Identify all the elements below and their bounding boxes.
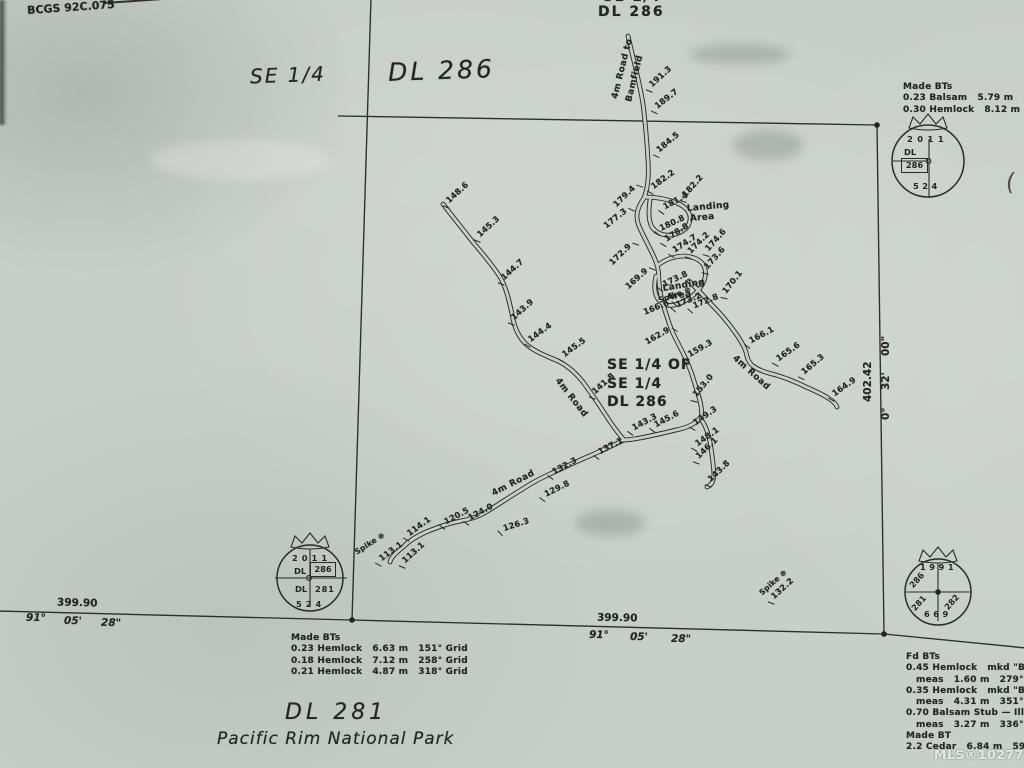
bearing-seconds: 00": [880, 336, 892, 356]
station-label: 143.8: [699, 458, 732, 490]
station-label: 172.9: [607, 235, 640, 267]
bearing-degrees: 0°: [880, 407, 892, 420]
station-label: 182.2: [641, 167, 676, 196]
bearing-seconds: 28": [101, 617, 121, 630]
station-label: 165.6: [767, 339, 802, 368]
bt-block-0: Made BTs0.23 Balsam 5.79 m 325° G0.30 He…: [903, 82, 1024, 116]
monument-year: 2011: [907, 134, 948, 144]
station-label: 184.5: [647, 129, 681, 160]
monument-plan-number: 524: [296, 599, 325, 609]
label-se-quarter: SE 1/4: [250, 62, 327, 89]
label-quarter-of-quarter: SE 1/4 OF SE 1/4 DL 286: [607, 356, 691, 412]
bearing-distance: 402.42: [862, 361, 874, 402]
station-label: 144.7: [492, 257, 525, 288]
bearing-distance: 399.90: [57, 596, 98, 609]
bt-text-line: 0.21 Hemlock 4.87 m 318° Grid: [291, 667, 468, 678]
station-label: 162.9: [643, 320, 679, 347]
bearing-degrees: 91°: [589, 629, 609, 641]
monument-lot-prefix: DL: [294, 566, 306, 576]
bearing-distance: 399.90: [597, 612, 638, 625]
station-label: 143.9: [502, 297, 535, 328]
bt-text-line: 0.35 Hemlock mkd "BT: [906, 686, 1024, 697]
station-label: 144.4: [518, 320, 553, 349]
label-dl-286-top: DL 286: [598, 4, 665, 20]
bt-block-1: Made BTs0.23 Hemlock 6.63 m 151° Grid0.1…: [291, 633, 468, 678]
station-label: 145.3: [468, 214, 501, 245]
station-label: 148.6: [437, 180, 470, 211]
bt-text-line: 0.70 Balsam Stub — Illeg: [906, 708, 1024, 719]
road-name-label: 4m Road: [490, 468, 536, 498]
survey-plan-photo: 191.3189.7184.5182.2179.4181.4182.2180.8…: [0, 0, 1024, 768]
station-label: 137.1: [588, 435, 624, 461]
station-label: 169.9: [623, 260, 656, 291]
bearing-degrees: 91°: [26, 612, 46, 625]
station-label: 165.3: [792, 351, 826, 382]
monument-lot-number: 281: [315, 584, 335, 594]
monument-lot-prefix: DL: [295, 584, 307, 594]
monument-year: 1991: [920, 562, 957, 572]
station-label: 164.9: [823, 374, 858, 403]
bt-text-line: Made BT: [906, 731, 1024, 742]
station-label: 166.1: [739, 324, 775, 350]
monument-plan-number: 524: [913, 181, 941, 191]
bearing-minutes: 05': [630, 631, 648, 643]
bt-text-line: Made BTs: [291, 633, 468, 644]
label-line: SE 1/4 OF: [607, 356, 691, 375]
bt-text-line: 0.18 Hemlock 7.12 m 258° Grid: [291, 656, 468, 667]
label-dl-281: DL 281: [285, 700, 387, 725]
bt-text-line: 0.45 Hemlock mkd "BT: [906, 663, 1024, 674]
monument-lot-prefix: DL: [904, 147, 916, 157]
station-label: 129.8: [534, 478, 571, 503]
station-label: 170.1: [714, 268, 744, 302]
label-dl-286-west: DL 286: [388, 54, 496, 87]
label-line: SE 1/4: [607, 375, 691, 394]
bt-block-2: Fd BTs0.45 Hemlock mkd "BT meas 1.60 m 2…: [906, 652, 1024, 754]
bt-text-line: Fd BTs: [906, 652, 1024, 663]
monument-lot-number: 286: [310, 562, 336, 577]
label-line: DL 286: [607, 393, 691, 412]
bt-text-line: 0.30 Hemlock 8.12 m 79° Gr: [903, 105, 1024, 116]
mls-watermark: MLS®1027791: [934, 747, 1024, 762]
station-label: 132.3: [542, 455, 578, 481]
bt-text-line: meas 1.60 m 279° G: [906, 675, 1024, 686]
bt-text-line: 0.23 Balsam 5.79 m 325° G: [903, 93, 1024, 104]
bt-text-line: 0.23 Hemlock 6.63 m 151° Grid: [291, 644, 468, 655]
bt-text-line: meas 3.27 m 336°: [906, 720, 1024, 731]
monument-lot-number: 286: [901, 158, 928, 173]
station-label: 126.3: [493, 515, 530, 536]
bearing-minutes: 32': [880, 372, 892, 390]
road-name-label: 4m Road: [553, 376, 590, 419]
station-label: 145.5: [552, 335, 587, 364]
station-label: 182.2: [674, 172, 705, 205]
monument-plan-number: 669: [924, 609, 952, 619]
bearing-minutes: 05': [64, 615, 82, 627]
station-label: 114.1: [397, 514, 432, 543]
bt-text-line: Made BTs: [903, 82, 1024, 93]
label-pacific-rim-park: Pacific Rim National Park: [217, 729, 454, 749]
bt-text-line: meas 4.31 m 351° G: [906, 697, 1024, 708]
area-label: Area: [689, 212, 715, 224]
bearing-seconds: 28": [671, 633, 691, 645]
